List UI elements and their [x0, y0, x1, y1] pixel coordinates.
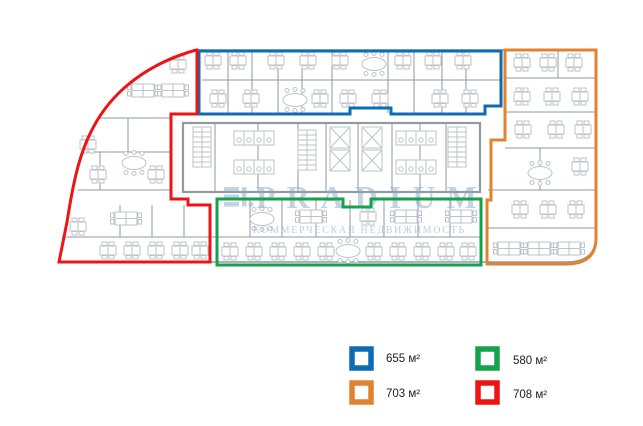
legend-swatch-orange [352, 383, 371, 402]
desk-cluster [462, 90, 478, 107]
legend-label-green: 580 м² [513, 355, 547, 367]
desk-cluster [192, 242, 208, 259]
desk-cluster [222, 243, 238, 260]
stairs-icon [193, 127, 211, 167]
desk-cluster [390, 243, 406, 260]
desk-cluster [210, 90, 226, 107]
toilet-stalls [234, 131, 274, 145]
desk-cluster [172, 242, 188, 259]
desk-cluster [438, 243, 454, 260]
desk-cluster [246, 243, 262, 260]
meeting-table [528, 161, 552, 186]
desk-cluster [575, 121, 591, 138]
elevator-shaft-icon [330, 127, 350, 148]
desk-cluster [268, 52, 284, 69]
desk-cluster [148, 242, 164, 259]
desk-cluster [548, 121, 564, 138]
desk-cluster [124, 242, 140, 259]
desk-cluster [494, 242, 525, 255]
elevator-shaft-icon [362, 150, 382, 171]
desk-cluster [70, 218, 86, 235]
desk-cluster [300, 52, 316, 69]
floor-plan-page: PRADIUM КОММЕРЧЕСКАЯ НЕДВИЖИМОСТЬ 655 м²… [0, 0, 643, 426]
legend-label-orange: 703 м² [386, 388, 420, 400]
desk-cluster [540, 54, 556, 71]
desk-cluster [332, 52, 348, 69]
desk-cluster [568, 201, 584, 218]
elevator-shaft-icon [362, 127, 382, 148]
stairs-icon [298, 130, 316, 170]
desk-cluster [395, 52, 411, 69]
desk-cluster [205, 52, 221, 69]
legend-swatch-green [478, 349, 497, 368]
desk-cluster [270, 243, 286, 260]
toilet-stalls [234, 160, 274, 174]
watermark-brand: PRADIUM [256, 179, 488, 215]
meeting-table [122, 151, 146, 176]
floor-plan-image: PRADIUM КОММЕРЧЕСКАЯ НЕДВИЖИМОСТЬ 655 м²… [0, 0, 643, 426]
desk-cluster [366, 243, 382, 260]
toilet-stalls [396, 131, 436, 145]
desk-cluster [566, 54, 582, 71]
desk-cluster [294, 243, 310, 260]
desk-cluster [312, 90, 328, 107]
desk-cluster [540, 201, 556, 218]
desk-cluster [460, 243, 476, 260]
legend-swatch-blue [352, 349, 371, 368]
meeting-table [336, 239, 360, 264]
desk-cluster [554, 242, 585, 255]
stairs-icon [448, 127, 466, 167]
desk-cluster [515, 121, 531, 138]
desk-cluster [230, 52, 246, 69]
desk-cluster [243, 90, 259, 107]
desk-cluster [512, 201, 528, 218]
zone-outline-orange [487, 50, 596, 264]
desk-cluster [414, 243, 430, 260]
desk-cluster [90, 166, 106, 183]
desk-cluster [432, 90, 448, 107]
desk-cluster [572, 88, 588, 105]
desk-cluster [524, 242, 555, 255]
elevator-shaft-icon [330, 150, 350, 171]
watermark-tagline: КОММЕРЧЕСКАЯ НЕДВИЖИМОСТЬ [253, 225, 466, 236]
desk-cluster [128, 84, 159, 97]
legend: 655 м² 580 м² 703 м² 708 м² [352, 349, 547, 402]
meeting-table [283, 88, 307, 113]
legend-label-blue: 655 м² [386, 353, 420, 365]
desk-cluster [318, 243, 334, 260]
desk-cluster [340, 90, 356, 107]
desk-cluster [158, 84, 189, 97]
toilet-stalls [396, 160, 436, 174]
watermark-logo-icon [224, 187, 253, 207]
desk-cluster [455, 52, 471, 69]
legend-label-red: 708 м² [513, 389, 547, 401]
desk-cluster [148, 166, 164, 183]
desk-cluster [514, 88, 530, 105]
desk-cluster [544, 88, 560, 105]
meeting-table [362, 52, 386, 77]
desk-cluster [425, 52, 441, 69]
desk-cluster [572, 158, 588, 175]
desk-cluster [100, 242, 116, 259]
desk-cluster [111, 212, 142, 225]
desk-cluster [372, 90, 388, 107]
desk-cluster [514, 54, 530, 71]
legend-swatch-red [478, 383, 497, 402]
